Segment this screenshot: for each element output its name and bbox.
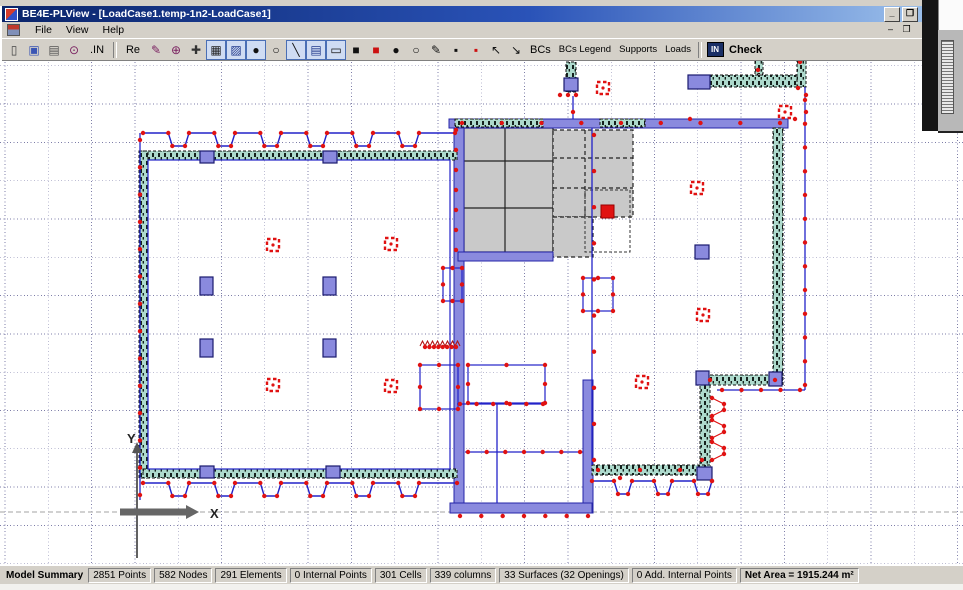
grid-icon: ▦ [210,43,221,57]
pan-icon[interactable]: ✚ [186,40,206,60]
bcs-button[interactable]: BCs [526,40,555,60]
menu-bar-items: FileViewHelp [28,22,131,38]
rect-tool-icon[interactable]: ▭ [326,40,346,60]
y-axis-label: Y [127,431,136,446]
new-file-icon: ▯ [11,43,18,57]
add-point-red-icon: ■ [372,43,379,57]
status-panel: 0 Internal Points [290,568,372,583]
square-hash-red-icon: ▪ [474,43,478,57]
print-icon: ▤ [48,43,59,57]
square-hash-red-icon[interactable]: ▪ [466,40,486,60]
mdi-restore-button[interactable]: ❐ [900,24,913,36]
toolbar: ▯▣▤⊙.INRe✎⊕✚▦▨●○╲▤▭■■●○✎▪▪↖↘BCsBCs Legen… [2,39,961,61]
print-icon[interactable]: ▤ [44,40,64,60]
zoom-search-icon: ⊙ [69,43,79,57]
drawing-canvas[interactable]: YX [0,61,963,565]
restore-button[interactable]: ❐ [902,7,918,22]
window-title: BE4E-PLView - [LoadCase1.temp-1n2-LoadCa… [22,8,271,20]
loads-button[interactable]: Loads [661,40,695,60]
pen-hash-icon[interactable]: ✎ [426,40,446,60]
toolbar-separator [113,42,117,58]
mdi-child-icon [7,24,20,36]
overlay-window-edge [922,0,938,131]
new-file-icon[interactable]: ▯ [4,40,24,60]
move-node-open-icon: ○ [412,43,419,57]
cursor-icon[interactable]: ↖ [486,40,506,60]
in-button[interactable]: .IN [84,40,110,60]
in-check-icon: IN [707,42,724,57]
in-check-icon[interactable]: IN [705,40,725,60]
menu-file[interactable]: File [28,22,59,38]
status-panel: 33 Surfaces (32 Openings) [499,568,629,583]
overlay-scrollbar[interactable] [941,40,954,114]
zoom-in-icon: ⊕ [171,43,181,57]
save-icon[interactable]: ▣ [24,40,44,60]
status-panel: 582 Nodes [154,568,212,583]
status-bar: Model Summary 2851 Points582 Nodes291 El… [0,565,963,584]
menu-bar: FileViewHelp – ❐ [2,22,961,39]
overlay-window-top [938,0,963,30]
x-axis-label: X [210,506,219,521]
pointer-edit-icon[interactable]: ✎ [146,40,166,60]
node-filled-icon: ● [252,43,259,57]
cursor-icon: ↖ [491,43,501,57]
node-filled-icon[interactable]: ● [246,40,266,60]
zoom-search-icon[interactable]: ⊙ [64,40,84,60]
rect-tool-icon: ▭ [330,43,341,57]
move-node-icon[interactable]: ● [386,40,406,60]
line-tool-icon: ╲ [292,43,299,57]
title-bar[interactable]: BE4E-PLView - [LoadCase1.temp-1n2-LoadCa… [2,6,961,22]
status-panel: 2851 Points [88,568,151,583]
add-point-red-icon[interactable]: ■ [366,40,386,60]
check-button[interactable]: Check [725,40,766,60]
status-panel: 301 Cells [375,568,427,583]
bcs-legend-button[interactable]: BCs Legend [555,40,615,60]
menu-help[interactable]: Help [96,22,132,38]
cursor-line-icon: ↘ [511,43,521,57]
move-node-open-icon[interactable]: ○ [406,40,426,60]
mdi-minimize-button[interactable]: – [884,24,897,36]
menu-view[interactable]: View [59,22,96,38]
node-open-icon[interactable]: ○ [266,40,286,60]
floor-plan-svg: YX [0,61,963,565]
snap-grid-icon: ▨ [230,43,241,57]
line-tool-icon[interactable]: ╲ [286,40,306,60]
square-hash-black-icon[interactable]: ▪ [446,40,466,60]
cursor-line-icon[interactable]: ↘ [506,40,526,60]
keypad-icon[interactable]: ▤ [306,40,326,60]
status-panel: 0 Add. Internal Points [632,568,737,583]
move-node-icon: ● [392,43,399,57]
node-open-icon: ○ [272,43,279,57]
status-panel: 339 columns [430,568,497,583]
model-summary-label: Model Summary [6,570,83,581]
zoom-in-icon[interactable]: ⊕ [166,40,186,60]
pen-hash-icon: ✎ [431,43,441,57]
status-panel: 291 Elements [215,568,286,583]
grid-icon[interactable]: ▦ [206,40,226,60]
keypad-icon: ▤ [310,43,321,57]
app-icon [5,8,18,21]
re-button[interactable]: Re [120,40,146,60]
pan-icon: ✚ [191,43,201,57]
minimize-button[interactable]: _ [884,7,900,22]
toolbar-separator [698,42,702,58]
supports-button[interactable]: Supports [615,40,661,60]
pointer-edit-icon: ✎ [151,43,161,57]
window-frame-bottom [0,584,963,590]
save-icon: ▣ [28,43,39,57]
status-panels: 2851 Points582 Nodes291 Elements0 Intern… [88,568,862,583]
add-point-black-icon[interactable]: ■ [346,40,366,60]
square-hash-black-icon: ▪ [454,43,458,57]
snap-grid-icon[interactable]: ▨ [226,40,246,60]
status-panel: Net Area = 1915.244 m² [740,568,859,583]
add-point-black-icon: ■ [352,43,359,57]
